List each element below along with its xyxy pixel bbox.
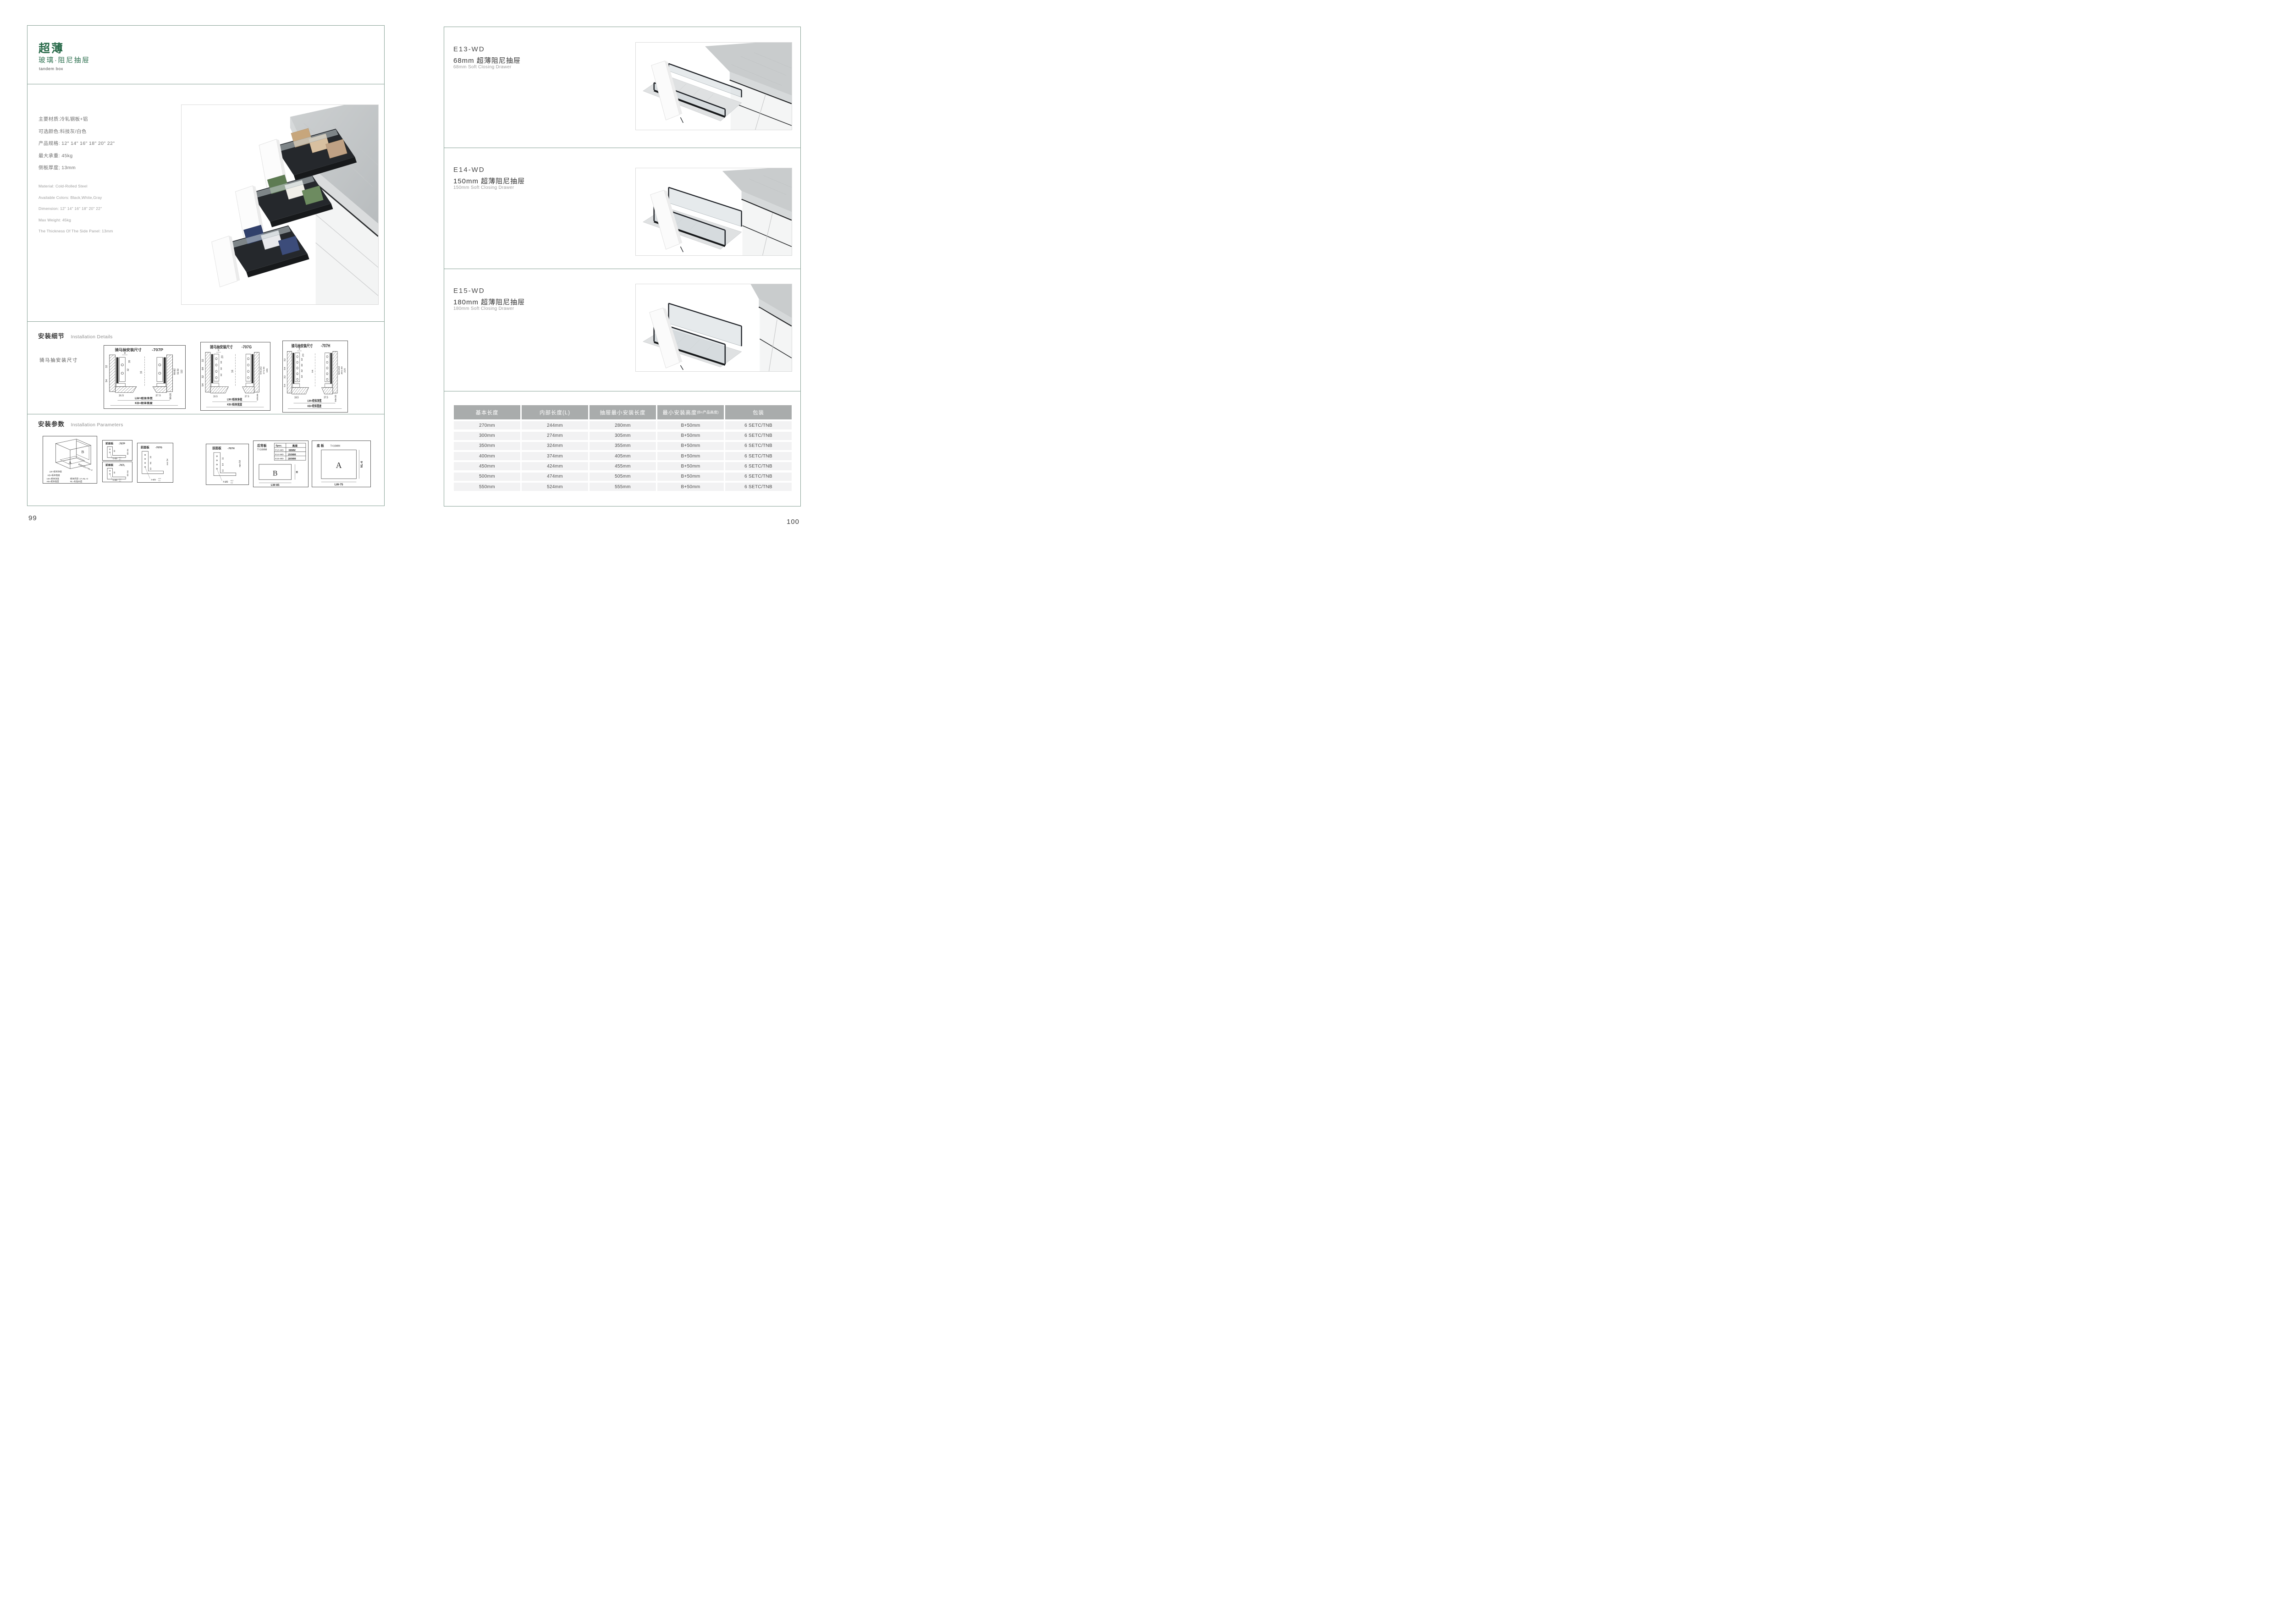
page-tagline: tandem box [39, 66, 63, 71]
svg-text:Min162: Min162 [260, 366, 262, 374]
diagram-back-panel: 后背板 T=16MM Spec. 高度 E13-WD 68MM E14-WD 1… [253, 440, 309, 487]
svg-text:64: 64 [149, 462, 152, 464]
section-divider [444, 269, 800, 269]
product-title-cn-e13: 68mm 超薄阻尼抽屉 [453, 55, 521, 65]
svg-text:-707P: -707P [152, 347, 163, 352]
svg-text:16.5: 16.5 [213, 395, 218, 398]
col-header-min-install-length: 抽屉最小安装长度 [590, 405, 656, 419]
section-divider [444, 391, 800, 391]
cell: 300mm [454, 432, 520, 440]
cell: 6 SETC/TNB [725, 421, 792, 429]
cell: 270mm [454, 421, 520, 429]
svg-text:LW=柜体净宽: LW=柜体净宽 [135, 396, 153, 400]
svg-text:91.50: 91.50 [177, 369, 180, 374]
svg-text:2-Ø2: 2-Ø2 [113, 479, 117, 481]
diagram-cabinet-isometric: A B LW=柜体净宽 KB=柜体宽度 柜体内空LT=NL+3 LW=柜体净宽 … [43, 436, 97, 484]
svg-text:32: 32 [301, 358, 303, 361]
svg-text:171.50: 171.50 [263, 367, 265, 374]
svg-text:-0.1: -0.1 [158, 479, 161, 481]
cell: 6 SETC/TNB [725, 483, 792, 491]
cell: 6 SETC/TNB [725, 462, 792, 470]
svg-text:-707H: -707H [228, 447, 235, 450]
cell: 280mm [590, 421, 656, 429]
svg-text:68MM: 68MM [289, 449, 296, 452]
svg-text:64: 64 [284, 367, 286, 370]
install-params-title-en: Installation Parameters [71, 422, 123, 428]
table-row: 550mm 524mm 555mm B+50mm 6 SETC/TNB [454, 483, 792, 491]
svg-text:64: 64 [202, 367, 204, 370]
svg-text:前面板: 前面板 [105, 442, 113, 446]
svg-text:骑马抽安装尺寸: 骑马抽安装尺寸 [210, 344, 233, 349]
cell: 244mm [522, 421, 588, 429]
svg-text:32: 32 [221, 469, 224, 472]
cell: 524mm [522, 483, 588, 491]
cell: B+50mm [657, 432, 724, 440]
cell: 474mm [522, 473, 588, 481]
spec-line: Available Colors: Black,White,Gray [39, 192, 113, 204]
specs-chinese: 主要材质:冷轧钢板+铝 可选颜色:科技灰/白色 产品规格: 12" 14" 16… [39, 113, 115, 174]
drawer-180mm-illustration [636, 284, 792, 372]
svg-text:min 54: min 54 [166, 458, 169, 465]
svg-text:T=16MM: T=16MM [257, 449, 267, 451]
svg-text:37.5: 37.5 [245, 395, 249, 398]
table-row: 270mm 244mm 280mm B+50mm 6 SETC/TNB [454, 421, 792, 429]
install-details-title-cn: 安装细节 [38, 333, 65, 340]
col-header-height-note: (B=产品高度) [697, 410, 718, 415]
svg-text:16: 16 [140, 371, 143, 374]
svg-text:37.5: 37.5 [155, 395, 160, 397]
product-title-cn-e15: 180mm 超薄阻尼抽屉 [453, 297, 525, 307]
page-subtitle: 玻璃·阻尼抽屉 [39, 55, 90, 65]
svg-text:32: 32 [284, 358, 286, 362]
svg-text:54: 54 [284, 384, 286, 387]
svg-text:KB=柜体宽度: KB=柜体宽度 [227, 402, 242, 407]
col-header-min-install-height: 最小安装高度(B=产品高度) [657, 405, 724, 419]
svg-text:32: 32 [301, 363, 303, 367]
product-title-en-e14: 150mm Soft Closing Drawer [453, 185, 514, 190]
specs-english: Material: Cold-Rolled Steel Available Co… [39, 181, 113, 237]
svg-text:Min36: Min36 [256, 394, 259, 401]
svg-text:骑马抽安装尺寸: 骑马抽安装尺寸 [115, 347, 142, 352]
section-divider [444, 148, 800, 148]
product-image-e14 [635, 168, 792, 256]
page-title: 超薄 [39, 39, 64, 56]
svg-text:-0.1: -0.1 [119, 480, 121, 482]
svg-text:LW=柜体净宽: LW=柜体净宽 [308, 399, 322, 403]
install-params-title-cn: 安装参数 [38, 421, 65, 428]
svg-text:32: 32 [220, 361, 222, 363]
cell: 500mm [454, 473, 520, 481]
svg-text:16.5: 16.5 [119, 395, 124, 397]
svg-text:4-Ø2: 4-Ø2 [223, 481, 228, 484]
svg-text:前面板: 前面板 [141, 445, 150, 449]
svg-text:B: B [273, 469, 277, 477]
svg-text:32: 32 [149, 456, 152, 458]
svg-text:-707G: -707G [242, 344, 252, 349]
svg-text:-707P: -707P [119, 443, 126, 446]
product-model-e13: E13-WD [453, 45, 485, 53]
diagram-front-panel-707G: 前面板 -707G 32 64 32 min 54 4-Ø2 +0.2 -0.1 [137, 443, 173, 483]
svg-text:180MM: 180MM [288, 458, 296, 461]
diagram-front-panel-707H: 前面板 -707H 32 64 32 min 54 4-Ø2 +0.2 -0.1 [206, 444, 249, 485]
svg-text:LW-85: LW-85 [271, 484, 280, 487]
cell: B+50mm [657, 421, 724, 429]
cell: 455mm [590, 462, 656, 470]
svg-text:4-Ø2: 4-Ø2 [151, 479, 156, 481]
svg-text:Min192: Min192 [338, 366, 340, 375]
diagram-bottom-panel: 底 板 T=16MM A NL-6 LW-75 [312, 440, 371, 487]
svg-text:KB=柜体宽度: KB=柜体宽度 [135, 402, 153, 405]
table-row: 350mm 324mm 355mm B+50mm 6 SETC/TNB [454, 442, 792, 450]
cell: 405mm [590, 452, 656, 460]
spec-line: 可选颜色:科技灰/白色 [39, 126, 115, 138]
right-page: E13-WD 68mm 超薄阻尼抽屉 68mm Soft Closing Dra… [444, 27, 801, 506]
svg-text:-0.1: -0.1 [231, 482, 233, 484]
svg-text:20: 20 [128, 360, 131, 363]
svg-text:E15-WD: E15-WD [275, 457, 284, 460]
cell: B+50mm [657, 473, 724, 481]
svg-text:32: 32 [105, 365, 108, 368]
svg-text:113: 113 [181, 370, 183, 374]
svg-text:64: 64 [221, 463, 224, 466]
col-header-basic-length: 基本长度 [454, 405, 520, 419]
spec-line: 主要材质:冷轧钢板+铝 [39, 113, 115, 126]
svg-text:前面板: 前面板 [212, 446, 221, 450]
diagram-707P: 骑马抽安装尺寸 -707P 16 9 20 [104, 345, 186, 409]
cell: B+50mm [657, 483, 724, 491]
svg-text:54: 54 [105, 380, 108, 382]
svg-text:16: 16 [231, 370, 234, 373]
svg-text:Spec.: Spec. [275, 445, 282, 447]
spec-line: Material: Cold-Rolled Steel [39, 181, 113, 192]
product-model-e15: E15-WD [453, 287, 485, 295]
svg-text:KB=柜体宽度: KB=柜体宽度 [48, 473, 60, 477]
section-divider [28, 414, 384, 414]
svg-text:Min82: Min82 [173, 369, 176, 375]
spec-line: Dimension: 12" 14" 16" 18" 20" 22" [39, 203, 113, 215]
page-number-right: 100 [787, 518, 799, 526]
svg-text:2-Ø2: 2-Ø2 [113, 457, 117, 460]
install-details-title: 安装细节 Installation Details [38, 331, 113, 341]
table-row: 450mm 424mm 455mm B+50mm 6 SETC/TNB [454, 462, 792, 470]
svg-text:LW-75: LW-75 [335, 483, 343, 486]
svg-text:高度: 高度 [292, 444, 298, 447]
svg-text:E14-WD: E14-WD [275, 453, 284, 456]
left-page: 超薄 玻璃·阻尼抽屉 tandem box 主要材质:冷轧钢板+铝 可选颜色:科… [27, 25, 385, 506]
svg-text:-707H: -707H [321, 343, 330, 348]
svg-text:前面板: 前面板 [105, 463, 113, 467]
svg-text:min 54: min 54 [127, 449, 129, 455]
col-header-min-install-height-label: 最小安装高度 [662, 409, 697, 416]
cell: 424mm [522, 462, 588, 470]
svg-text:A: A [69, 460, 72, 465]
svg-text:9: 9 [299, 348, 300, 351]
svg-text:9: 9 [124, 352, 126, 355]
svg-text:32: 32 [221, 457, 224, 460]
diagram-707G: 骑马抽安装尺寸 -707G [200, 342, 270, 411]
svg-text:32: 32 [202, 375, 204, 379]
cell: 274mm [522, 432, 588, 440]
cell: 6 SETC/TNB [725, 432, 792, 440]
svg-text:32: 32 [149, 468, 152, 470]
spec-line: Max Weight: 45kg [39, 215, 113, 226]
svg-text:A: A [336, 461, 342, 470]
svg-text:54: 54 [202, 383, 204, 386]
svg-text:32: 32 [202, 359, 204, 362]
svg-text:20: 20 [221, 355, 224, 358]
svg-text:E13-WD: E13-WD [275, 449, 284, 452]
dimension-table: 基本长度 内部长度(L) 抽屉最小安装长度 最小安装高度(B=产品高度) 包装 … [454, 405, 792, 491]
table-header-row: 基本长度 内部长度(L) 抽屉最小安装长度 最小安装高度(B=产品高度) 包装 [454, 405, 792, 419]
svg-text:195: 195 [266, 368, 268, 372]
svg-text:16: 16 [311, 370, 314, 373]
svg-text:-707G: -707G [155, 446, 162, 449]
svg-text:Min36: Min36 [169, 393, 172, 400]
svg-text:NL=标准长度: NL=标准长度 [70, 480, 83, 483]
cell: 374mm [522, 452, 588, 460]
svg-text:-707L: -707L [119, 464, 126, 467]
svg-text:225: 225 [344, 368, 346, 373]
cell: 505mm [590, 473, 656, 481]
diagram-front-panel-707P: 前面板 -707P 32 min 54 2-Ø2 +0.2 -0.1 [102, 440, 132, 461]
page-number-left: 99 [28, 514, 37, 522]
spec-line: 侧板厚度; 13mm [39, 162, 115, 174]
svg-text:16.5: 16.5 [294, 396, 298, 400]
cell: 305mm [590, 432, 656, 440]
table-row: 500mm 474mm 505mm B+50mm 6 SETC/TNB [454, 473, 792, 481]
product-image-e15 [635, 284, 792, 372]
svg-text:32: 32 [301, 369, 303, 373]
svg-text:32: 32 [284, 375, 286, 379]
section-divider [28, 321, 384, 322]
svg-text:骑马抽安装尺寸: 骑马抽安装尺寸 [292, 343, 313, 348]
cell: 6 SETC/TNB [725, 452, 792, 460]
svg-text:+0.2: +0.2 [231, 480, 234, 482]
install-params-title: 安装参数 Installation Parameters [38, 419, 123, 429]
svg-text:37.5: 37.5 [324, 396, 328, 400]
cell: 6 SETC/TNB [725, 442, 792, 450]
cell: 400mm [454, 452, 520, 460]
cell: B+50mm [657, 452, 724, 460]
cell: B+50mm [657, 442, 724, 450]
cell: B+50mm [657, 462, 724, 470]
svg-text:20: 20 [302, 354, 304, 357]
svg-text:min 54: min 54 [127, 470, 129, 477]
diagram-front-panel-707L: 前面板 -707L 32 min 54 2-Ø2 +0.2 -0.1 [102, 462, 132, 482]
svg-text:LW=柜体净宽: LW=柜体净宽 [227, 397, 242, 402]
svg-text:Min36: Min36 [335, 395, 337, 402]
svg-text:150MM: 150MM [288, 453, 296, 456]
svg-text:+0.2: +0.2 [158, 478, 161, 479]
svg-text:底 板: 底 板 [317, 444, 324, 448]
cell: 324mm [522, 442, 588, 450]
drawer-150mm-illustration [636, 168, 792, 256]
svg-text:-0.1: -0.1 [119, 459, 121, 460]
cell: 555mm [590, 483, 656, 491]
svg-text:201.50: 201.50 [341, 366, 343, 374]
product-image-e13 [635, 42, 792, 130]
svg-text:32: 32 [113, 471, 116, 473]
svg-text:32: 32 [127, 369, 130, 371]
svg-text:KB=柜体宽度: KB=柜体宽度 [47, 480, 59, 483]
spec-line: 最大承重: 45kg [39, 150, 115, 162]
cell: 450mm [454, 462, 520, 470]
svg-text:32: 32 [113, 450, 116, 452]
svg-text:LW=柜体净宽: LW=柜体净宽 [50, 470, 62, 473]
cell: 350mm [454, 442, 520, 450]
svg-text:KB=柜体宽度: KB=柜体宽度 [308, 404, 322, 408]
table-row: 400mm 374mm 405mm B+50mm 6 SETC/TNB [454, 452, 792, 460]
col-header-inner-length: 内部长度(L) [522, 405, 588, 419]
svg-text:min 54: min 54 [239, 460, 242, 467]
product-title-en-e15: 180mm Soft Closing Drawer [453, 306, 514, 311]
svg-text:T=16MM: T=16MM [330, 445, 340, 448]
svg-text:32: 32 [301, 375, 303, 378]
svg-text:9: 9 [218, 349, 219, 352]
svg-text:后背板: 后背板 [257, 444, 267, 448]
catalog-sheet: 超薄 玻璃·阻尼抽屉 tandem box 主要材质:冷轧钢板+铝 可选颜色:科… [0, 0, 830, 541]
svg-text:32: 32 [220, 367, 222, 370]
drawer-68mm-illustration [636, 43, 792, 130]
product-title-cn-e14: 150mm 超薄阻尼抽屉 [453, 176, 525, 186]
product-model-e14: E14-WD [453, 166, 485, 174]
col-header-packing: 包装 [725, 405, 792, 419]
svg-text:32: 32 [220, 374, 222, 376]
cell: 550mm [454, 483, 520, 491]
hero-product-image [181, 105, 379, 305]
svg-text:NL-6: NL-6 [360, 461, 364, 468]
product-title-en-e13: 68mm Soft Closing Drawer [453, 65, 512, 70]
header-divider [28, 84, 384, 84]
svg-text:H: H [296, 471, 299, 473]
spec-line: 产品规格: 12" 14" 16" 18" 20" 22" [39, 138, 115, 150]
table-row: 300mm 274mm 305mm B+50mm 6 SETC/TNB [454, 432, 792, 440]
spec-line: The Thickness Of The Side Panel: 13mm [39, 226, 113, 237]
cell: 6 SETC/TNB [725, 473, 792, 481]
drawer-cabinet-illustration [182, 105, 378, 304]
diagram-707H: 骑马抽安装尺寸 -707H [282, 341, 348, 413]
svg-text:B: B [82, 449, 84, 454]
install-details-subtitle: 骑马抽安装尺寸 [39, 357, 78, 363]
cell: 355mm [590, 442, 656, 450]
install-details-title-en: Installation Details [71, 334, 112, 340]
